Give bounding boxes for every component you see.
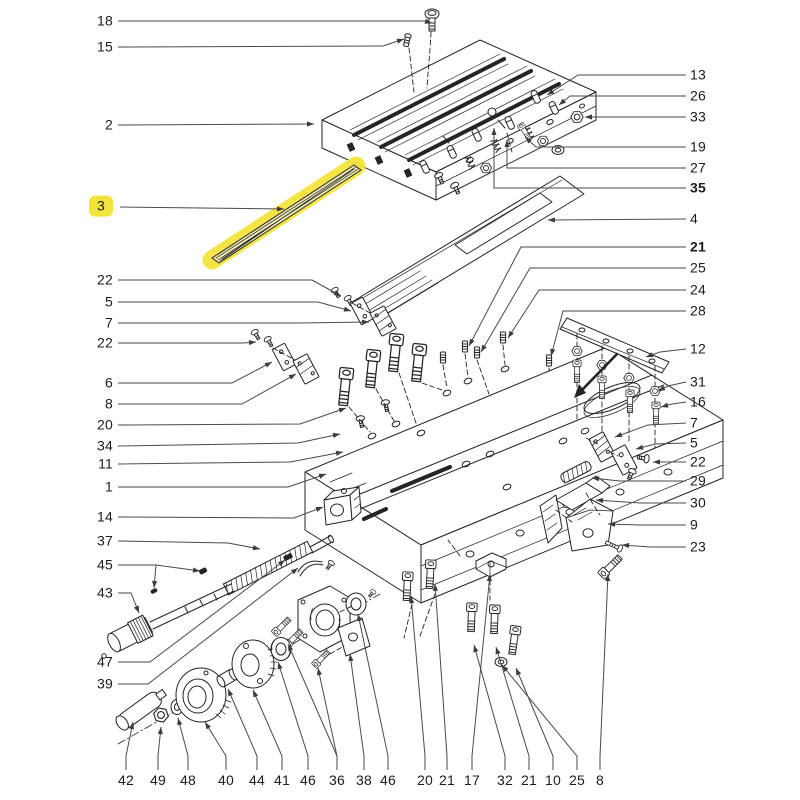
callout-label-7: 7 [690,415,698,429]
callout-label-35: 35 [690,180,706,194]
callout-label-34: 34 [97,438,113,452]
callout-label-23: 23 [690,539,706,553]
callout-label-14: 14 [97,509,113,523]
callout-label-29: 29 [690,473,706,487]
exploded-parts-diagram: 1815232257226820341111437454347391326331… [0,0,800,800]
callout-label-33: 33 [690,109,706,123]
callout-label-21: 21 [521,773,537,787]
callout-label-6: 6 [105,375,113,389]
callout-label-8: 8 [105,396,113,410]
callout-label-12: 12 [690,341,706,355]
callout-label-42: 42 [118,773,134,787]
callout-label-20: 20 [417,773,433,787]
callout-label-36: 36 [329,773,345,787]
callout-label-2: 2 [105,117,113,131]
callout-label-27: 27 [690,160,706,174]
callout-label-28: 28 [690,303,706,317]
cover-plate-part [352,176,584,320]
callout-label-48: 48 [180,773,196,787]
callout-label-4: 4 [690,211,698,225]
callout-label-5: 5 [105,294,113,308]
callout-label-1: 1 [105,479,113,493]
callout-label-25: 25 [690,260,706,274]
callout-label-43: 43 [97,585,113,599]
callout-label-8: 8 [596,773,604,787]
callout-label-45: 45 [97,557,113,571]
callout-label-16: 16 [690,394,706,408]
callout-label-18: 18 [97,13,113,27]
exploded-diagram-artwork [0,0,800,800]
callout-label-7: 7 [105,315,113,329]
callout-label-46: 46 [380,773,396,787]
callout-label-17: 17 [464,773,480,787]
highlighted-gib-part [212,165,361,263]
callout-label-30: 30 [690,495,706,509]
callout-label-21: 21 [439,773,455,787]
callout-label-20: 20 [97,417,113,431]
callout-label-40: 40 [218,773,234,787]
handwheel-group [113,638,291,733]
callout-label-19: 19 [690,139,706,153]
callout-label-15: 15 [97,39,113,53]
callout-label-47: 47 [97,654,113,668]
callout-label-46: 46 [300,773,316,787]
callout-label-38: 38 [356,773,372,787]
callout-label-9: 9 [690,517,698,531]
callout-label-22: 22 [690,454,706,468]
callout-label-31: 31 [690,374,706,388]
callout-label-26: 26 [690,88,706,102]
callout-label-49: 49 [150,773,166,787]
callout-label-13: 13 [690,67,706,81]
callout-label-41: 41 [274,773,290,787]
callout-label-3: 3 [89,196,113,217]
end-plate-set-lower [250,328,319,384]
callout-label-21: 21 [690,239,706,253]
callout-label-22: 22 [97,335,113,349]
callout-label-25: 25 [569,773,585,787]
callout-label-32: 32 [497,773,513,787]
callout-label-44: 44 [249,773,265,787]
callout-label-10: 10 [545,773,561,787]
table-part [322,40,596,200]
callout-label-22: 22 [97,272,113,286]
callout-label-37: 37 [97,533,113,547]
callout-label-5: 5 [690,435,698,449]
callout-label-24: 24 [690,282,706,296]
callout-label-11: 11 [98,456,113,470]
callout-label-39: 39 [97,676,113,690]
